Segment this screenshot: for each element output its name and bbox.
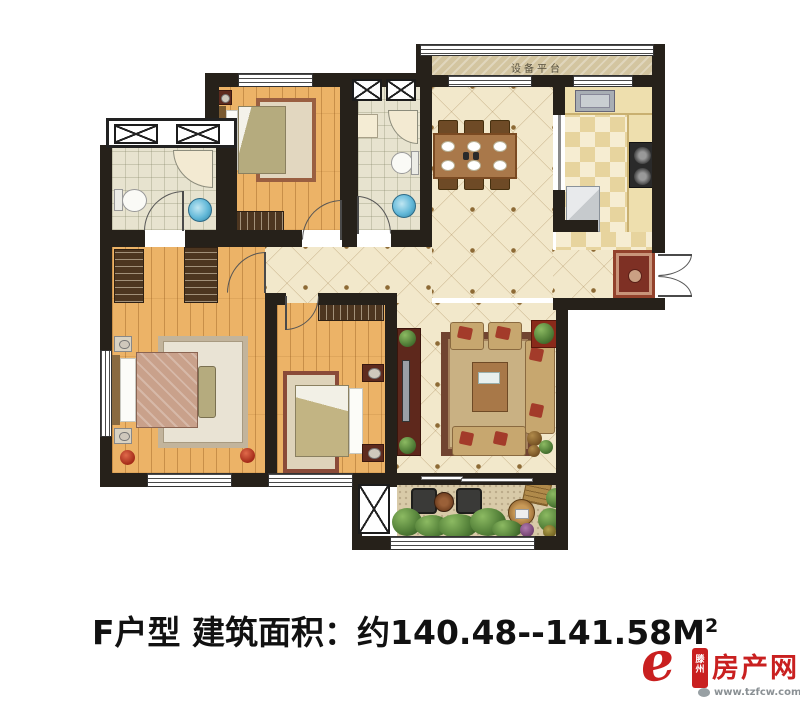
entry-rug-medallion: [628, 269, 642, 283]
logo-city-top: 滕: [692, 655, 708, 665]
wall-bedroom-bottom-right: [385, 293, 397, 473]
entry-door-arc-1: [658, 254, 692, 276]
bedroom-bottom-window: [268, 473, 353, 487]
bottom-bedroom-blanket: [295, 385, 349, 457]
entry-rug: [613, 250, 655, 298]
toilet-bowl-left-bath: [122, 189, 147, 212]
living-sofa-right-pillow-2: [529, 403, 544, 418]
living-sofa-right-pillow-1: [529, 347, 544, 362]
ac-xbox-1: [114, 124, 158, 144]
stove-burner-2: [634, 168, 651, 185]
door-leaf-bedroom-bottom: [285, 296, 287, 330]
master-nightstand-2: [114, 428, 132, 444]
tv-screen: [402, 360, 410, 422]
dining-plate-5: [467, 160, 481, 171]
kitchen-sink-basin: [580, 94, 610, 108]
wall-master-right: [265, 293, 277, 473]
balcony-shaft-xbox: [358, 484, 390, 534]
living-flowers-3: [528, 445, 540, 457]
door-leaf-bedroom-top: [340, 200, 342, 240]
kitchen-top-window: [573, 75, 633, 87]
balcony-flower-purple: [520, 523, 534, 537]
caption-text: F户型 建筑面积：约140.48--141.58M: [92, 613, 705, 652]
logo-url: www.tzfcw.com.cn: [714, 687, 800, 698]
master-wardrobe-1: [114, 249, 144, 303]
top-bedroom-nightstand-1: [217, 90, 232, 105]
bottom-bedroom-pillows: [349, 388, 363, 454]
master-blanket: [136, 352, 198, 428]
top-bedroom-blanket: [238, 106, 286, 174]
bath-middle-xbox-2: [386, 79, 416, 101]
wall-balcony-right: [556, 483, 568, 536]
caption: F户型 建筑面积：约140.48--141.58M2: [92, 606, 718, 654]
living-plant: [534, 323, 554, 344]
master-bottom-window: [147, 473, 232, 487]
entry-door-leaf-1: [658, 254, 692, 256]
balcony-slider-panel-2: [461, 478, 533, 482]
master-pillows: [120, 358, 136, 422]
logo-e-glyph: e: [636, 632, 678, 690]
bedroom-top-window: [238, 73, 313, 87]
dining-table: [433, 133, 517, 179]
wall-right-upper: [652, 44, 665, 253]
stove-burner-1: [634, 147, 651, 164]
balcony-table: [434, 492, 454, 512]
master-flowerpot-2: [240, 448, 255, 463]
door-leaf-bath-middle: [357, 196, 359, 234]
balcony-mat-card: [515, 509, 529, 519]
master-flowerpot-1: [120, 450, 135, 465]
dining-plate-1: [441, 141, 455, 152]
wall-kitchen-stub: [553, 220, 598, 232]
bottom-bedroom-nightstand-2: [362, 444, 384, 462]
ac-xbox-2: [176, 124, 220, 144]
living-sofa-bottom-pillow-2: [493, 431, 508, 446]
dining-centerpiece-2: [473, 152, 479, 160]
toilet-tank-middle-bath: [411, 151, 419, 175]
entry-door-arc-2: [658, 276, 692, 297]
dining-plate-4: [441, 160, 455, 171]
wall-bath-middle-right: [420, 75, 432, 247]
master-headboard: [112, 355, 120, 425]
door-gap-bath-left: [145, 230, 185, 247]
master-nightstand-1: [114, 336, 132, 352]
bath-middle-xbox-1: [352, 79, 382, 101]
dining-plate-2: [467, 141, 481, 152]
wall-living-right: [556, 310, 568, 475]
master-wardrobe-2: [184, 247, 218, 303]
bottom-bedroom-nightstand-1: [362, 364, 384, 382]
logo-url-icon: [698, 688, 710, 697]
kitchen-sliding-door: [558, 115, 561, 190]
basin-left-bath: [188, 198, 212, 222]
master-left-window: [100, 350, 112, 437]
logo-city-tag: 滕 州: [692, 648, 708, 688]
entry-door-leaf-2: [658, 295, 692, 297]
equipment-platform-label: 设备平台: [511, 60, 563, 75]
coffee-table-tray: [478, 372, 500, 384]
coffee-table: [472, 362, 508, 412]
floorplan-page: 设备平台: [0, 0, 800, 702]
wall-kitchen-left-upper: [553, 87, 565, 115]
dining-top-window: [448, 75, 532, 87]
dining-centerpiece: [463, 152, 469, 160]
logo-site-name: 房产网: [712, 646, 799, 685]
tv-plant-2: [399, 437, 416, 454]
living-armchair-2-pillow: [495, 326, 511, 341]
kitchen-sink: [575, 90, 615, 112]
dining-plate-3: [493, 141, 507, 152]
dining-room-floor: [432, 87, 553, 298]
logo-city-bottom: 州: [692, 665, 708, 675]
dining-plate-6: [493, 160, 507, 171]
kitchen-threshold: [556, 232, 655, 250]
basin-middle-bath: [392, 194, 416, 218]
platform-window-band: [420, 44, 654, 56]
wall-bath-left-right: [216, 148, 237, 230]
living-sofa-bottom-pillow-1: [459, 431, 474, 446]
site-logo: e 滕 州 房产网 www.tzfcw.com.cn: [636, 634, 800, 702]
door-leaf-bath-left: [182, 191, 184, 231]
tv-plant-1: [399, 330, 416, 347]
wall-entry-bottom: [553, 298, 665, 310]
toilet-bowl-middle-bath: [391, 152, 413, 174]
door-leaf-master: [264, 252, 266, 293]
living-armchair-1-pillow: [457, 326, 473, 341]
master-bench: [198, 366, 216, 418]
balcony-bottom-window: [390, 536, 535, 550]
living-flowers-2: [539, 440, 553, 454]
balcony-slider-panel-1: [421, 476, 463, 480]
